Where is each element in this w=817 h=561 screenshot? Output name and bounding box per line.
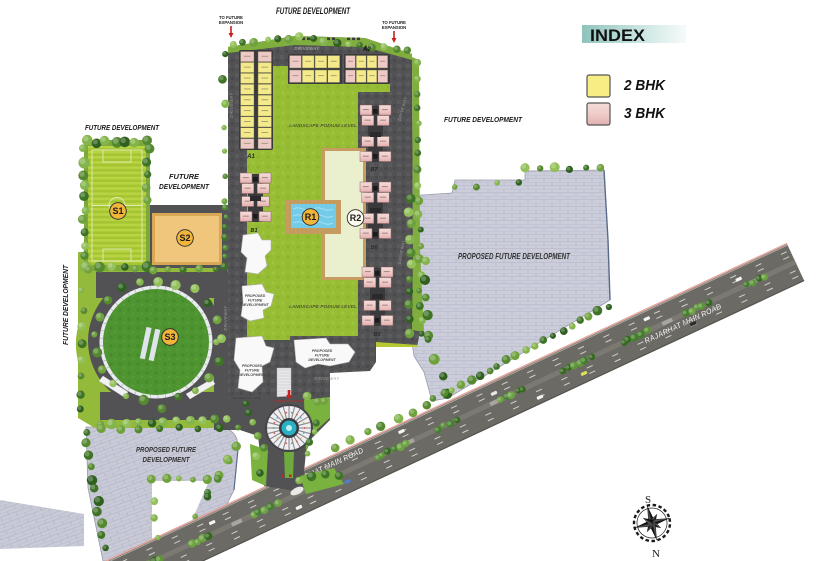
svg-text:DEVELOPMENT: DEVELOPMENT — [143, 455, 191, 464]
svg-text:A2: A2 — [362, 47, 371, 53]
svg-text:3 BHK: 3 BHK — [624, 105, 666, 122]
svg-text:N: N — [652, 548, 660, 560]
svg-text:DRIVEWAY: DRIVEWAY — [223, 305, 228, 331]
svg-text:R1: R1 — [305, 212, 317, 222]
svg-text:B7: B7 — [370, 167, 378, 173]
svg-text:EXPANSION: EXPANSION — [382, 25, 406, 30]
svg-text:B6: B6 — [370, 245, 378, 251]
svg-text:DRIVEWAY: DRIVEWAY — [294, 46, 320, 51]
svg-text:DEVELOPMENT: DEVELOPMENT — [159, 182, 210, 191]
svg-text:RESIDENTIAL GATE: RESIDENTIAL GATE — [233, 396, 261, 400]
svg-text:DEVELOPMENT: DEVELOPMENT — [308, 358, 336, 362]
svg-text:B5: B5 — [373, 332, 381, 338]
svg-text:R2: R2 — [350, 213, 362, 223]
svg-text:S: S — [645, 494, 651, 506]
svg-text:PROPOSED FUTURE DEVELOPMENT: PROPOSED FUTURE DEVELOPMENT — [458, 252, 571, 261]
svg-text:B1: B1 — [250, 228, 257, 234]
svg-text:FUTURE DEVELOPMENT: FUTURE DEVELOPMENT — [85, 123, 160, 132]
svg-text:2 BHK: 2 BHK — [623, 77, 666, 94]
svg-text:PROPOSED FUTURE: PROPOSED FUTURE — [136, 445, 197, 454]
svg-text:PROPOSED: PROPOSED — [312, 349, 333, 353]
svg-text:DRIVEWAY: DRIVEWAY — [314, 376, 340, 381]
svg-text:FUTURE: FUTURE — [169, 172, 199, 181]
svg-text:RESIDENTIAL ENTRY: RESIDENTIAL ENTRY — [273, 399, 304, 403]
svg-text:INDEX: INDEX — [590, 26, 646, 45]
svg-text:PROPOSED: PROPOSED — [245, 294, 266, 298]
svg-text:EXPANSION: EXPANSION — [219, 20, 243, 25]
svg-text:FUTURE: FUTURE — [245, 369, 260, 373]
svg-text:S3: S3 — [164, 332, 175, 342]
svg-text:PROPOSED: PROPOSED — [242, 364, 263, 368]
svg-text:DEVELOPMENT: DEVELOPMENT — [241, 303, 269, 307]
svg-text:FUTURE DEVELOPMENT: FUTURE DEVELOPMENT — [444, 115, 523, 124]
svg-text:DRIVEWAY: DRIVEWAY — [229, 92, 234, 118]
svg-text:FUTURE DEVELOPMENT: FUTURE DEVELOPMENT — [61, 264, 70, 345]
svg-text:FUTURE: FUTURE — [248, 299, 263, 303]
svg-text:FUTURE: FUTURE — [315, 354, 330, 358]
svg-text:LANDSCAPE PODIUM LEVEL: LANDSCAPE PODIUM LEVEL — [289, 123, 357, 128]
svg-text:DEVELOPMENT: DEVELOPMENT — [238, 373, 266, 377]
svg-text:LANDSCAPE PODIUM LEVEL: LANDSCAPE PODIUM LEVEL — [289, 304, 357, 309]
svg-text:S1: S1 — [112, 206, 123, 216]
svg-text:S2: S2 — [179, 233, 190, 243]
svg-text:FUTURE DEVELOPMENT: FUTURE DEVELOPMENT — [276, 6, 350, 16]
svg-text:A1: A1 — [246, 154, 255, 160]
